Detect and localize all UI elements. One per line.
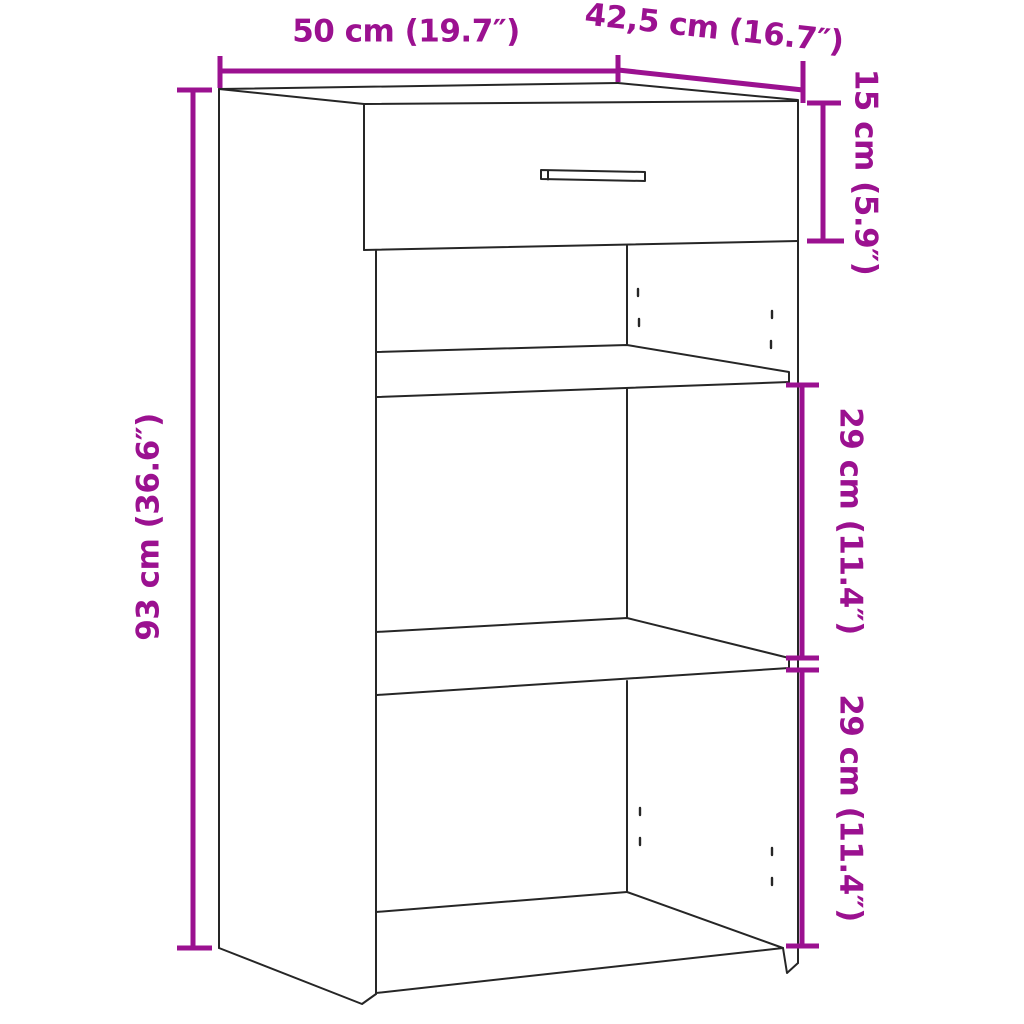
handle-bar [541, 170, 645, 181]
right-panel-bottom-foot [783, 948, 798, 973]
front-top-edge [364, 101, 798, 104]
cabinet-carcass [219, 83, 798, 1004]
total-height-dimension: 93 cm (36.6″) [131, 90, 213, 948]
cabinet-drawing [219, 83, 798, 1004]
top-back-edge [219, 83, 618, 89]
diagram-canvas: 50 cm (19.7″) 42,5 cm (16.7″) 15 cm (5.9… [0, 0, 1024, 1024]
drawer-height-dimension: 15 cm (5.9″) [807, 69, 884, 276]
dimension-annotations: 50 cm (19.7″) 42,5 cm (16.7″) 15 cm (5.9… [131, 0, 884, 948]
top-left-depth-edge [219, 89, 364, 104]
depth-dimension-label: 42,5 cm (16.7″) [583, 0, 845, 60]
drawer-height-dimension-label: 15 cm (5.9″) [848, 69, 884, 276]
shelf-pin-holes [638, 289, 772, 885]
depth-dimension-line [618, 70, 803, 90]
total-height-dimension-label: 93 cm (36.6″) [131, 413, 167, 641]
bottom-front-edge [376, 948, 783, 993]
lower-shelf [376, 618, 789, 695]
upper-shelf [376, 345, 789, 397]
floor-right-edge [627, 892, 783, 948]
furniture-dimension-diagram: 50 cm (19.7″) 42,5 cm (16.7″) 15 cm (5.9… [0, 0, 1024, 1024]
width-dimension: 50 cm (19.7″) [220, 14, 618, 89]
drawer-handle [541, 170, 645, 181]
upper-compartment-dimension-label: 29 cm (11.4″) [833, 407, 869, 635]
left-panel-bottom-edge [219, 948, 376, 1004]
lower-compartment-dimension-label: 29 cm (11.4″) [833, 694, 869, 922]
width-dimension-label: 50 cm (19.7″) [292, 14, 520, 50]
floor-back-edge [376, 892, 627, 912]
depth-dimension: 42,5 cm (16.7″) [583, 0, 845, 103]
drawer-front [364, 104, 798, 250]
drawer-bottom-edge [364, 241, 798, 250]
